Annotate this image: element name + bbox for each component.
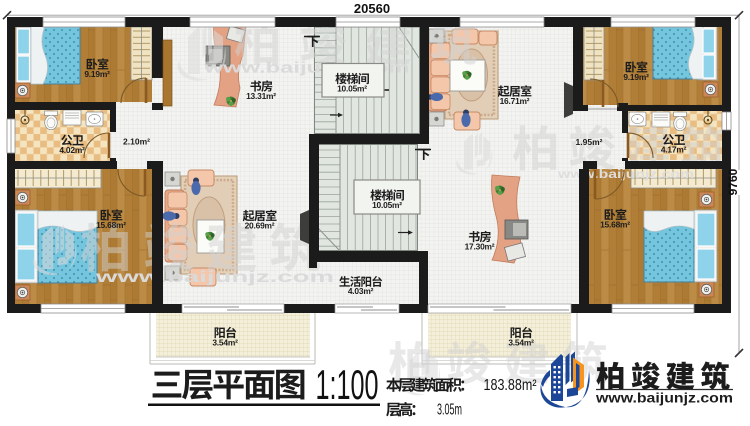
svg-text:15.68m²: 15.68m² [96,220,126,230]
svg-text:www.baijunjz.com: www.baijunjz.com [557,169,694,181]
svg-text:17.30m²: 17.30m² [465,242,495,252]
svg-text:20560: 20560 [354,1,390,16]
svg-text:9.19m²: 9.19m² [84,69,110,79]
svg-text:9.19m²: 9.19m² [623,72,649,82]
svg-text:3.05m: 3.05m [437,402,462,419]
svg-text:4.17m²: 4.17m² [661,145,687,155]
svg-text:16.71m²: 16.71m² [500,96,530,106]
svg-text:10.05m²: 10.05m² [337,84,367,94]
svg-text:3.54m²: 3.54m² [212,338,238,348]
svg-text:3.54m²: 3.54m² [508,338,534,348]
svg-text:13.31m²: 13.31m² [246,91,276,101]
svg-text:4.02m²: 4.02m² [59,145,85,155]
svg-text:4.03m²: 4.03m² [348,286,374,296]
svg-text:10.05m²: 10.05m² [372,200,402,210]
svg-text:15.68m²: 15.68m² [600,220,630,230]
svg-text:www.baijunjz.com: www.baijunjz.com [595,390,733,406]
svg-text:www.baijunjz.com: www.baijunjz.com [94,269,334,286]
svg-text:1.95m²: 1.95m² [576,137,603,147]
svg-text:9760: 9760 [726,168,740,195]
svg-text:2.10m²: 2.10m² [123,137,150,147]
svg-text:20.69m²: 20.69m² [245,221,275,231]
svg-text:183.88m²: 183.88m² [484,377,537,394]
svg-text:1:100: 1:100 [316,361,379,408]
